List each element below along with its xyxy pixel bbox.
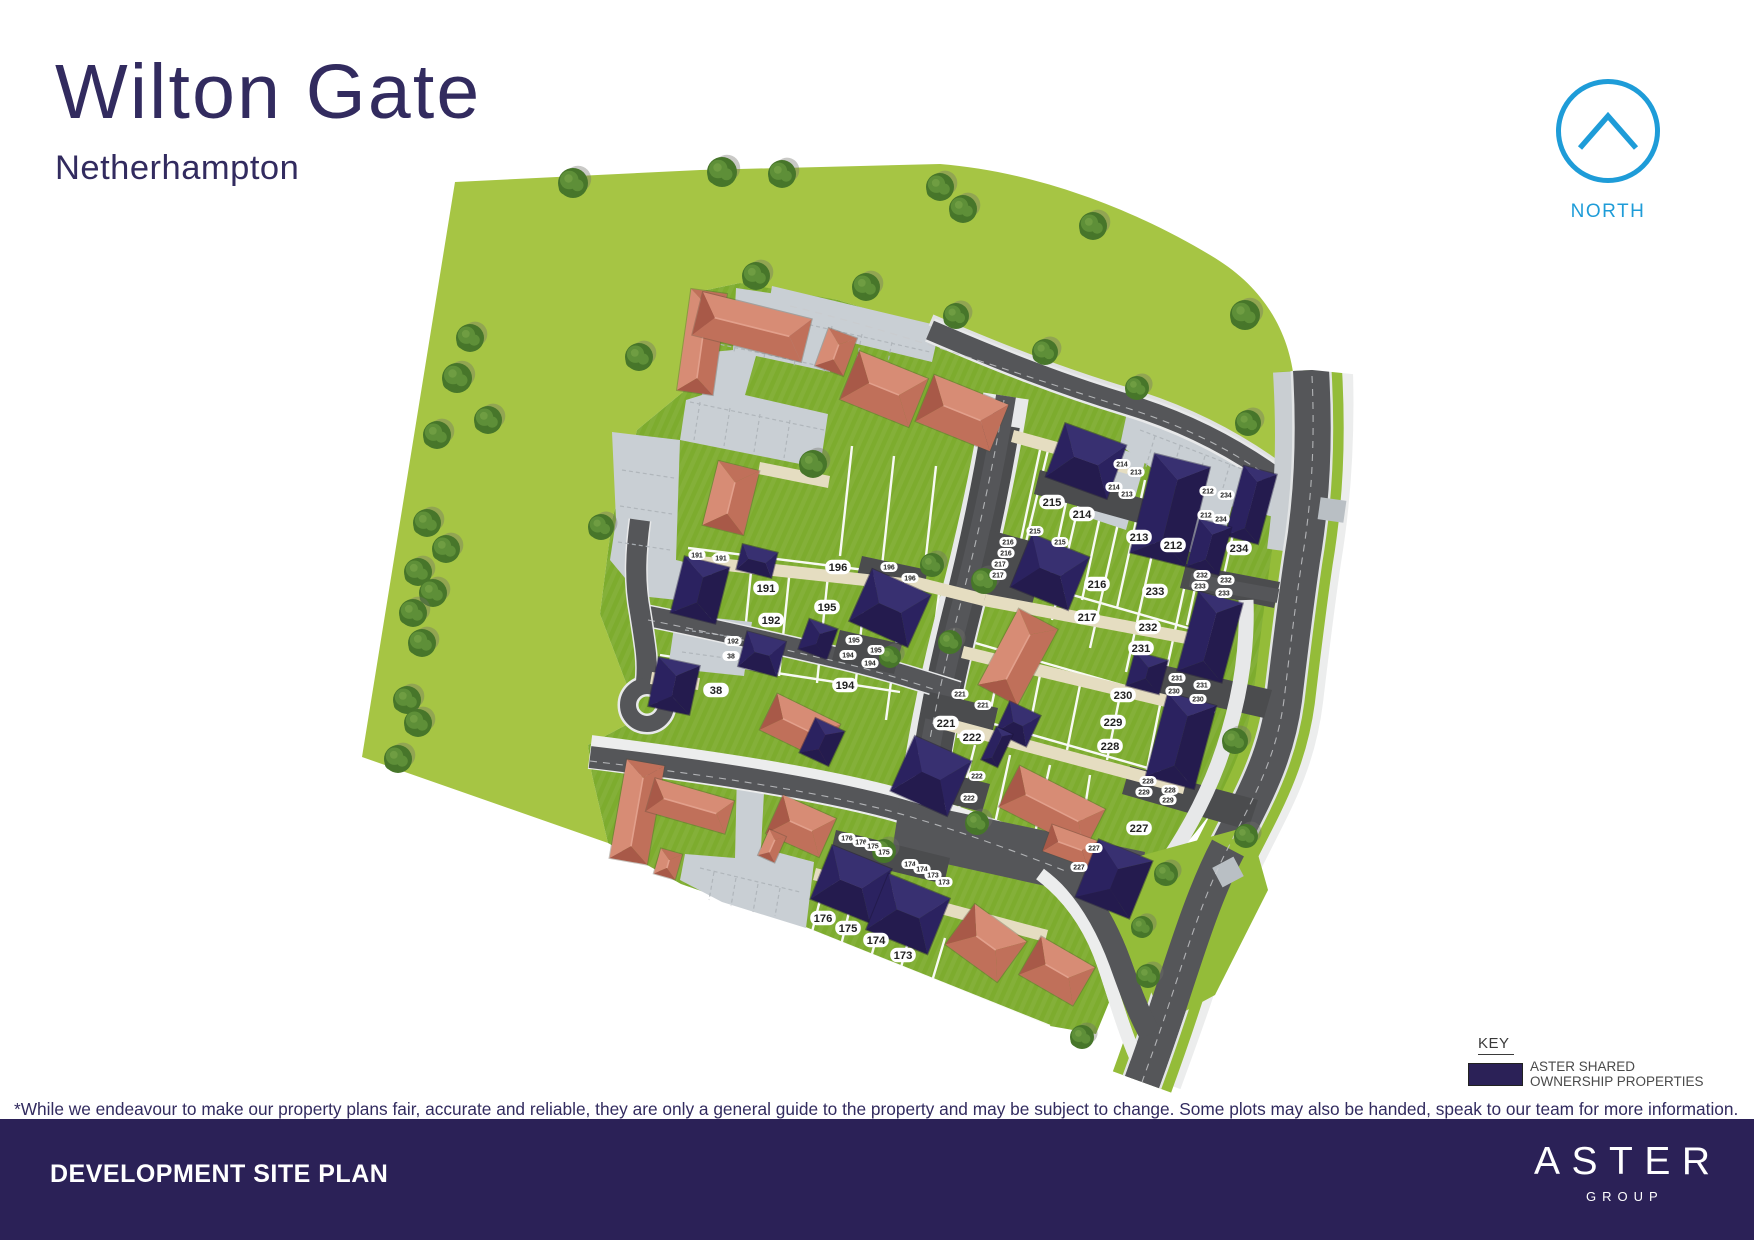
svg-text:229: 229	[1138, 789, 1150, 796]
svg-text:196: 196	[829, 562, 848, 574]
svg-text:174: 174	[867, 935, 886, 947]
svg-text:175: 175	[878, 849, 890, 856]
svg-text:215: 215	[1029, 528, 1041, 535]
svg-text:234: 234	[1220, 492, 1232, 499]
svg-text:231: 231	[1171, 675, 1183, 682]
svg-text:227: 227	[1073, 864, 1085, 871]
svg-text:231: 231	[1196, 682, 1208, 689]
svg-text:232: 232	[1196, 572, 1208, 579]
svg-text:217: 217	[992, 572, 1004, 579]
svg-text:173: 173	[938, 879, 950, 886]
svg-text:232: 232	[1139, 622, 1158, 634]
svg-text:191: 191	[715, 555, 727, 562]
svg-text:214: 214	[1073, 509, 1092, 521]
svg-text:194: 194	[836, 680, 855, 692]
svg-text:229: 229	[1162, 797, 1174, 804]
svg-text:195: 195	[818, 602, 837, 614]
svg-text:217: 217	[1078, 612, 1097, 624]
svg-text:191: 191	[757, 583, 776, 595]
svg-text:175: 175	[839, 923, 858, 935]
svg-text:222: 222	[963, 732, 982, 744]
svg-text:38: 38	[710, 685, 722, 697]
svg-text:231: 231	[1132, 643, 1151, 655]
svg-text:213: 213	[1121, 491, 1133, 498]
svg-text:195: 195	[870, 647, 882, 654]
svg-text:233: 233	[1146, 586, 1165, 598]
svg-text:214: 214	[1108, 484, 1120, 491]
svg-text:213: 213	[1130, 469, 1142, 476]
svg-text:232: 232	[1220, 577, 1232, 584]
svg-text:233: 233	[1194, 583, 1206, 590]
svg-text:227: 227	[1130, 823, 1149, 835]
svg-text:215: 215	[1054, 539, 1066, 546]
svg-text:228: 228	[1101, 741, 1120, 753]
svg-text:230: 230	[1168, 688, 1180, 695]
svg-text:195: 195	[848, 637, 860, 644]
svg-text:176: 176	[841, 835, 853, 842]
svg-text:192: 192	[762, 615, 781, 627]
svg-text:213: 213	[1130, 532, 1149, 544]
svg-text:214: 214	[1116, 461, 1128, 468]
svg-text:222: 222	[963, 795, 975, 802]
svg-text:221: 221	[977, 702, 989, 709]
svg-text:230: 230	[1192, 696, 1204, 703]
svg-text:234: 234	[1230, 543, 1249, 555]
svg-text:212: 212	[1202, 488, 1214, 495]
svg-text:216: 216	[1000, 550, 1012, 557]
svg-text:196: 196	[904, 575, 916, 582]
svg-text:228: 228	[1142, 778, 1154, 785]
svg-text:194: 194	[842, 652, 854, 659]
svg-text:229: 229	[1104, 717, 1123, 729]
svg-text:221: 221	[937, 718, 956, 730]
svg-text:212: 212	[1164, 540, 1183, 552]
svg-text:215: 215	[1043, 497, 1062, 509]
svg-text:216: 216	[1002, 539, 1014, 546]
svg-text:227: 227	[1088, 845, 1100, 852]
svg-text:228: 228	[1164, 787, 1176, 794]
svg-text:216: 216	[1088, 579, 1107, 591]
svg-text:221: 221	[954, 691, 966, 698]
svg-text:194: 194	[864, 660, 876, 667]
svg-text:222: 222	[971, 773, 983, 780]
svg-text:191: 191	[691, 552, 703, 559]
svg-text:217: 217	[994, 561, 1006, 568]
svg-text:230: 230	[1114, 690, 1133, 702]
svg-text:196: 196	[883, 564, 895, 571]
svg-text:234: 234	[1215, 516, 1227, 523]
svg-text:192: 192	[727, 638, 739, 645]
svg-text:38: 38	[727, 653, 735, 660]
svg-text:233: 233	[1218, 590, 1230, 597]
svg-text:173: 173	[894, 950, 913, 962]
svg-text:176: 176	[814, 913, 833, 925]
svg-text:212: 212	[1200, 512, 1212, 519]
